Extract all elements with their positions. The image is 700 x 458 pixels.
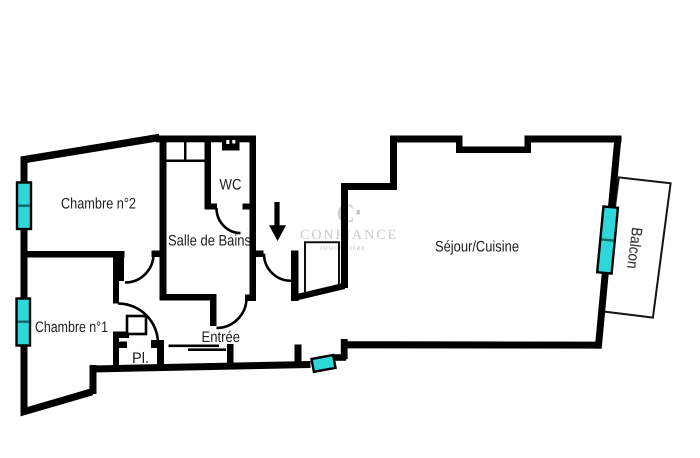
svg-text:Entrée: Entrée — [202, 329, 241, 346]
svg-text:Séjour/Cuisine: Séjour/Cuisine — [435, 239, 519, 256]
svg-text:Salle de Bains: Salle de Bains — [168, 233, 251, 250]
svg-text:Chambre n°1: Chambre n°1 — [35, 319, 108, 336]
svg-text:WC: WC — [220, 177, 242, 194]
svg-text:CONFIANCE: CONFIANCE — [300, 228, 398, 243]
svg-text:Pl.: Pl. — [132, 350, 149, 367]
svg-text:Chambre n°2: Chambre n°2 — [61, 196, 136, 213]
